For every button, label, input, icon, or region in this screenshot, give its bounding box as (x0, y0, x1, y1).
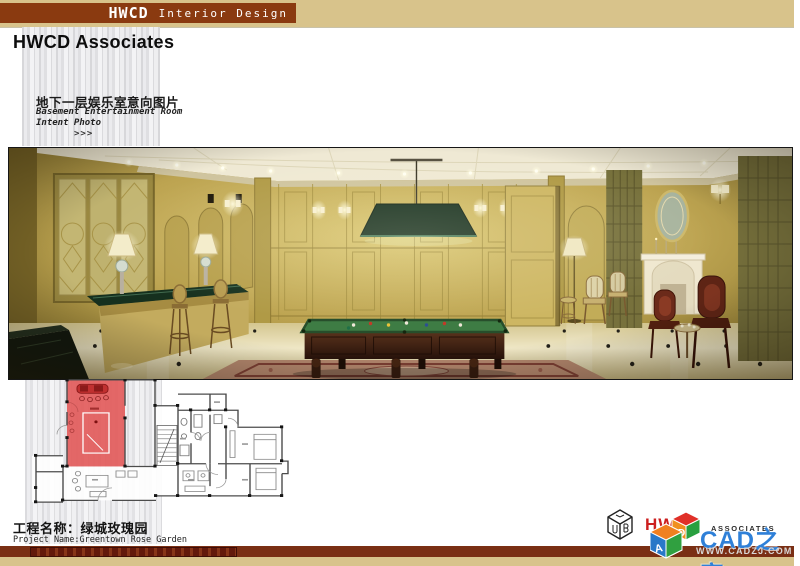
brand-box: HWCD Interior Design (0, 3, 296, 23)
floor-plan (28, 379, 303, 520)
highlighted-billiards-room (67, 380, 125, 467)
section-subtitle-en-1: Basement Entertainment Room (36, 107, 182, 117)
hwcd-logo-cube-icon (604, 506, 636, 544)
entertainment-room-photo (8, 147, 793, 380)
cadzj-url-text: WWW.CADZJ.COM (696, 546, 793, 556)
presentation-page: HWCD Interior Design HWCD Associates 地下一… (0, 0, 800, 566)
footer-watermark-box (30, 547, 237, 557)
project-name-en: Project Name:Greentown Rose Garden (13, 535, 187, 545)
brand-name: HWCD (109, 4, 149, 22)
top-bar: HWCD Interior Design (0, 0, 794, 28)
stairs (157, 425, 177, 465)
page-title: HWCD Associates (13, 32, 174, 53)
brand-subtitle: Interior Design (159, 7, 288, 20)
cadzj-site-text: CAD之家 (700, 520, 800, 566)
section-subtitle-en-2: Intent Photo (36, 118, 101, 128)
section-arrows: >>> (74, 129, 93, 139)
